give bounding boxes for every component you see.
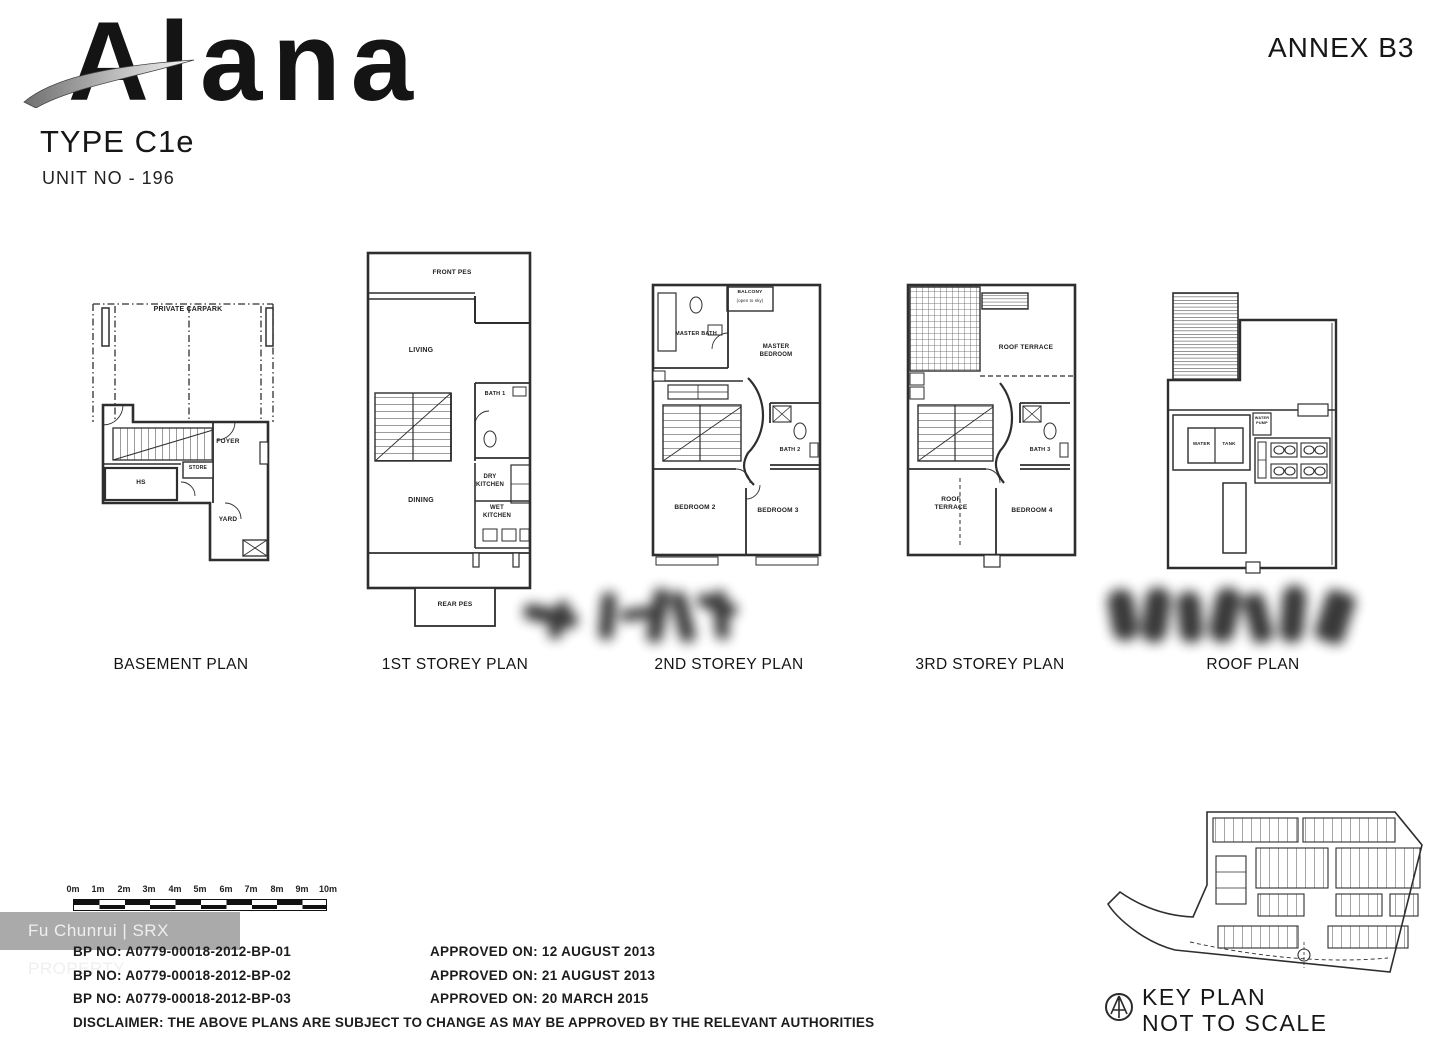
- key-plan-subtitle: NOT TO SCALE: [1142, 1010, 1327, 1037]
- disclaimer-text: DISCLAIMER: THE ABOVE PLANS ARE SUBJECT …: [73, 1015, 874, 1030]
- annex-label: ANNEX B3: [1268, 32, 1415, 64]
- scale-tick-label: 8m: [266, 884, 288, 894]
- room-label-master-bedroom: MASTER BEDROOM: [748, 344, 804, 359]
- caption-roof: ROOF PLAN: [1143, 656, 1363, 674]
- room-label-hs: HS: [121, 479, 161, 487]
- bp-number-2: BP NO: A0779-00018-2012-BP-02: [73, 968, 291, 983]
- room-label-bath1: BATH 1: [475, 391, 515, 398]
- caption-first-storey: 1ST STOREY PLAN: [345, 656, 565, 674]
- scale-tick-label: 2m: [113, 884, 135, 894]
- room-label-dining: DINING: [371, 497, 471, 506]
- second-storey-drawing: [648, 273, 840, 593]
- room-label-balcony-note: (open to sky): [728, 298, 772, 303]
- third-storey-plan: ROOF TERRACE BATH 3 ROOF TERRACE BEDROOM…: [898, 273, 1093, 593]
- room-label-rear-pes: REAR PES: [415, 601, 495, 609]
- caption-basement: BASEMENT PLAN: [71, 656, 291, 674]
- approved-date-3: APPROVED ON: 20 MARCH 2015: [430, 991, 649, 1006]
- room-label-bedroom2: BEDROOM 2: [665, 504, 725, 512]
- room-label-foyer: FOYER: [203, 438, 253, 446]
- scale-bar-rule: [73, 899, 327, 911]
- room-label-bath2: BATH 2: [770, 447, 810, 454]
- key-plan-title: KEY PLAN: [1142, 984, 1266, 1011]
- scale-tick-label: 4m: [164, 884, 186, 894]
- floorplan-document: Alana TYPE C1e UNIT NO - 196 ANNEX B3: [0, 0, 1440, 1057]
- room-label-bedroom4: BEDROOM 4: [1004, 507, 1060, 515]
- type-label: TYPE C1e: [40, 124, 194, 160]
- room-label-water-pump: WATER PUMP: [1251, 416, 1273, 425]
- approved-date-1: APPROVED ON: 12 AUGUST 2013: [430, 944, 655, 959]
- room-label-balcony: BALCONY: [728, 290, 772, 296]
- scale-tick-label: 1m: [87, 884, 109, 894]
- room-label-front-pes: FRONT PES: [410, 269, 494, 277]
- unit-number-label: UNIT NO - 196: [42, 168, 175, 189]
- room-label-carpark: PRIVATE CARPARK: [128, 306, 248, 315]
- caption-third-storey: 3RD STOREY PLAN: [880, 656, 1100, 674]
- room-label-bath3: BATH 3: [1020, 447, 1060, 454]
- smudge-watermark-right: [1098, 575, 1403, 653]
- key-plan: [1098, 792, 1440, 992]
- key-plan-drawing: [1098, 792, 1440, 992]
- room-label-store: STORE: [178, 465, 218, 471]
- scale-tick-label: 9m: [291, 884, 313, 894]
- basement-plan: PRIVATE CARPARK FOYER STORE HS YARD: [85, 292, 297, 562]
- approved-date-2: APPROVED ON: 21 AUGUST 2013: [430, 968, 655, 983]
- bp-number-3: BP NO: A0779-00018-2012-BP-03: [73, 991, 291, 1006]
- scale-tick-label: 10m: [317, 884, 339, 894]
- basement-plan-drawing: [85, 292, 297, 562]
- room-label-bedroom3: BEDROOM 3: [750, 507, 806, 515]
- logo-swoosh-icon: [22, 58, 202, 108]
- smudge-watermark-left: [498, 578, 776, 653]
- third-storey-drawing: [898, 273, 1093, 593]
- bp-number-1: BP NO: A0779-00018-2012-BP-01: [73, 944, 291, 959]
- scale-tick-label: 7m: [240, 884, 262, 894]
- second-storey-plan: BALCONY (open to sky) MASTER BATH MASTER…: [648, 273, 840, 593]
- caption-second-storey: 2ND STOREY PLAN: [619, 656, 839, 674]
- room-label-dry-kitchen: DRY KITCHEN: [469, 474, 511, 489]
- room-label-water: WATER: [1188, 441, 1215, 447]
- room-label-tank: TANK: [1215, 441, 1243, 447]
- room-label-yard: YARD: [203, 516, 253, 524]
- roof-plan: WATER TANK WATER PUMP: [1158, 283, 1348, 598]
- scale-tick-label: 3m: [138, 884, 160, 894]
- room-label-roof-terrace-lower: ROOF TERRACE: [926, 496, 976, 512]
- scale-tick-label: 0m: [62, 884, 84, 894]
- scale-tick-label: 5m: [189, 884, 211, 894]
- room-label-living: LIVING: [371, 347, 471, 356]
- scale-tick-label: 6m: [215, 884, 237, 894]
- room-label-wet-kitchen: WET KITCHEN: [477, 505, 517, 520]
- roof-plan-drawing: [1158, 283, 1348, 598]
- room-label-master-bath: MASTER BATH: [675, 331, 717, 338]
- north-arrow-icon: [1102, 990, 1136, 1024]
- room-label-roof-terrace-upper: ROOF TERRACE: [992, 344, 1060, 352]
